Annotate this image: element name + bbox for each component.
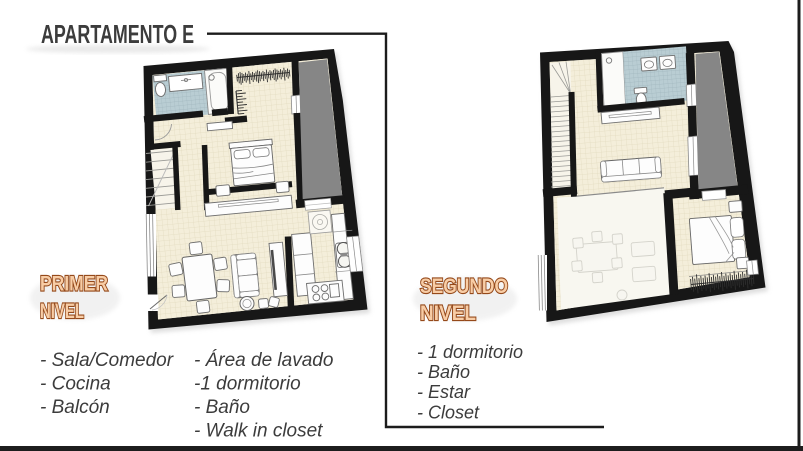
svg-text:- Baño: - Baño — [194, 397, 250, 418]
svg-text:- Estar: - Estar — [417, 382, 471, 402]
svg-text:- Baño: - Baño — [417, 362, 470, 382]
svg-text:SEGUNDO: SEGUNDO — [420, 274, 508, 298]
svg-text:NIVEL: NIVEL — [420, 301, 476, 325]
svg-text:- Balcón: - Balcón — [40, 397, 110, 418]
svg-text:APARTAMENTO E: APARTAMENTO E — [41, 19, 194, 49]
svg-text:- Cocina: - Cocina — [40, 374, 111, 395]
svg-text:- Sala/Comedor: - Sala/Comedor — [40, 350, 174, 371]
svg-text:- 1 dormitorio: - 1 dormitorio — [417, 342, 523, 362]
svg-text:- Walk in closet: - Walk in closet — [194, 421, 323, 442]
svg-text:PRIMER: PRIMER — [40, 272, 108, 296]
svg-text:- Área de lavado: - Área de lavado — [194, 350, 333, 371]
svg-text:-1 dormitorio: -1 dormitorio — [194, 374, 301, 395]
svg-text:- Closet: - Closet — [417, 402, 480, 422]
svg-text:NIVEL: NIVEL — [40, 299, 84, 323]
